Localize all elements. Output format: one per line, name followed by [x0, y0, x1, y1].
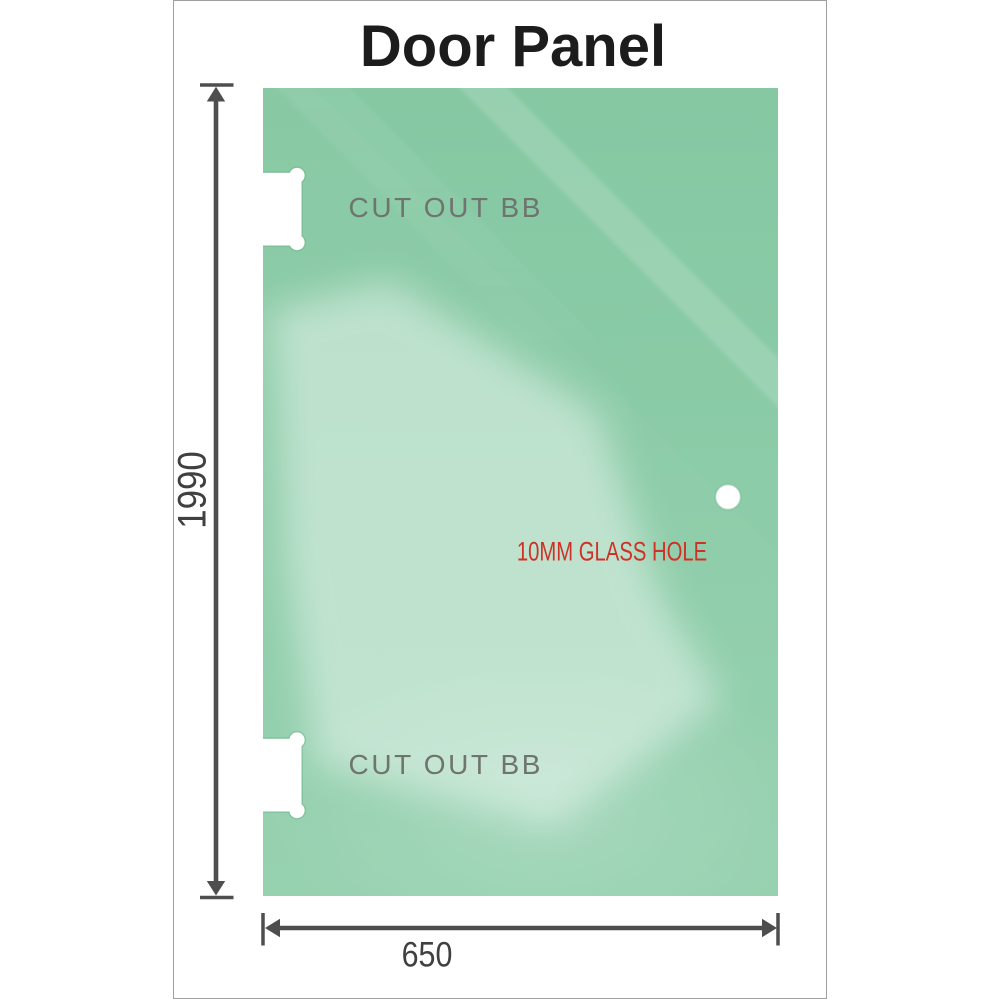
- svg-text:CUT OUT BB: CUT OUT BB: [349, 749, 544, 780]
- svg-text:CUT OUT BB: CUT OUT BB: [349, 192, 544, 223]
- svg-text:10MM GLASS HOLE: 10MM GLASS HOLE: [517, 537, 707, 566]
- svg-text:650: 650: [402, 934, 453, 973]
- svg-text:1990: 1990: [169, 451, 214, 528]
- svg-text:Door Panel: Door Panel: [360, 14, 666, 79]
